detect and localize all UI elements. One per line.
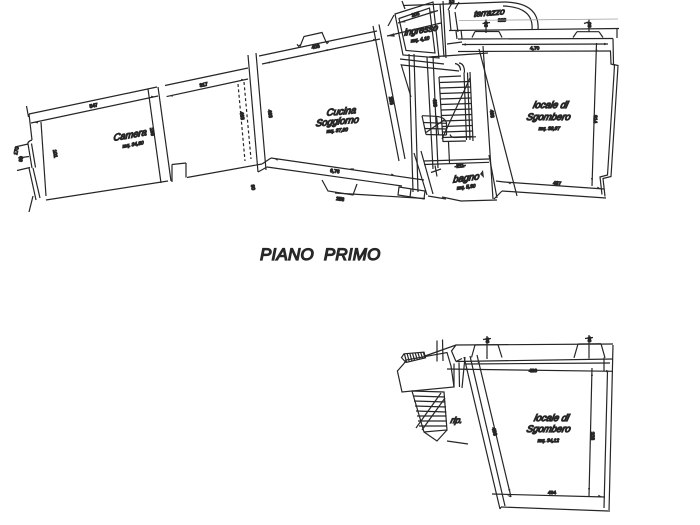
- svg-text:rip.: rip.: [450, 415, 464, 425]
- svg-text:Sgombero: Sgombero: [525, 112, 572, 123]
- svg-text:463: 463: [266, 109, 273, 118]
- svg-text:420: 420: [529, 368, 537, 374]
- svg-text:PIANO PRIMO: PIANO PRIMO: [260, 245, 381, 264]
- svg-text:4,70: 4,70: [530, 46, 540, 52]
- svg-text:463: 463: [488, 110, 495, 119]
- svg-text:Sgombero: Sgombero: [525, 424, 572, 435]
- svg-text:258: 258: [336, 196, 345, 203]
- svg-text:locale di: locale di: [532, 100, 570, 111]
- svg-text:90: 90: [587, 336, 593, 342]
- svg-text:90: 90: [484, 21, 490, 27]
- svg-text:locale di: locale di: [533, 413, 571, 424]
- svg-text:437: 437: [553, 181, 562, 188]
- svg-text:mq. 34,12: mq. 34,12: [537, 438, 560, 444]
- svg-text:303: 303: [589, 432, 595, 441]
- svg-text:90: 90: [587, 22, 593, 28]
- svg-text:mq. 39,97: mq. 39,97: [538, 126, 561, 132]
- svg-text:90: 90: [485, 337, 491, 343]
- svg-text:434: 434: [548, 490, 556, 496]
- svg-text:614: 614: [592, 115, 598, 124]
- svg-text:463: 463: [238, 111, 245, 120]
